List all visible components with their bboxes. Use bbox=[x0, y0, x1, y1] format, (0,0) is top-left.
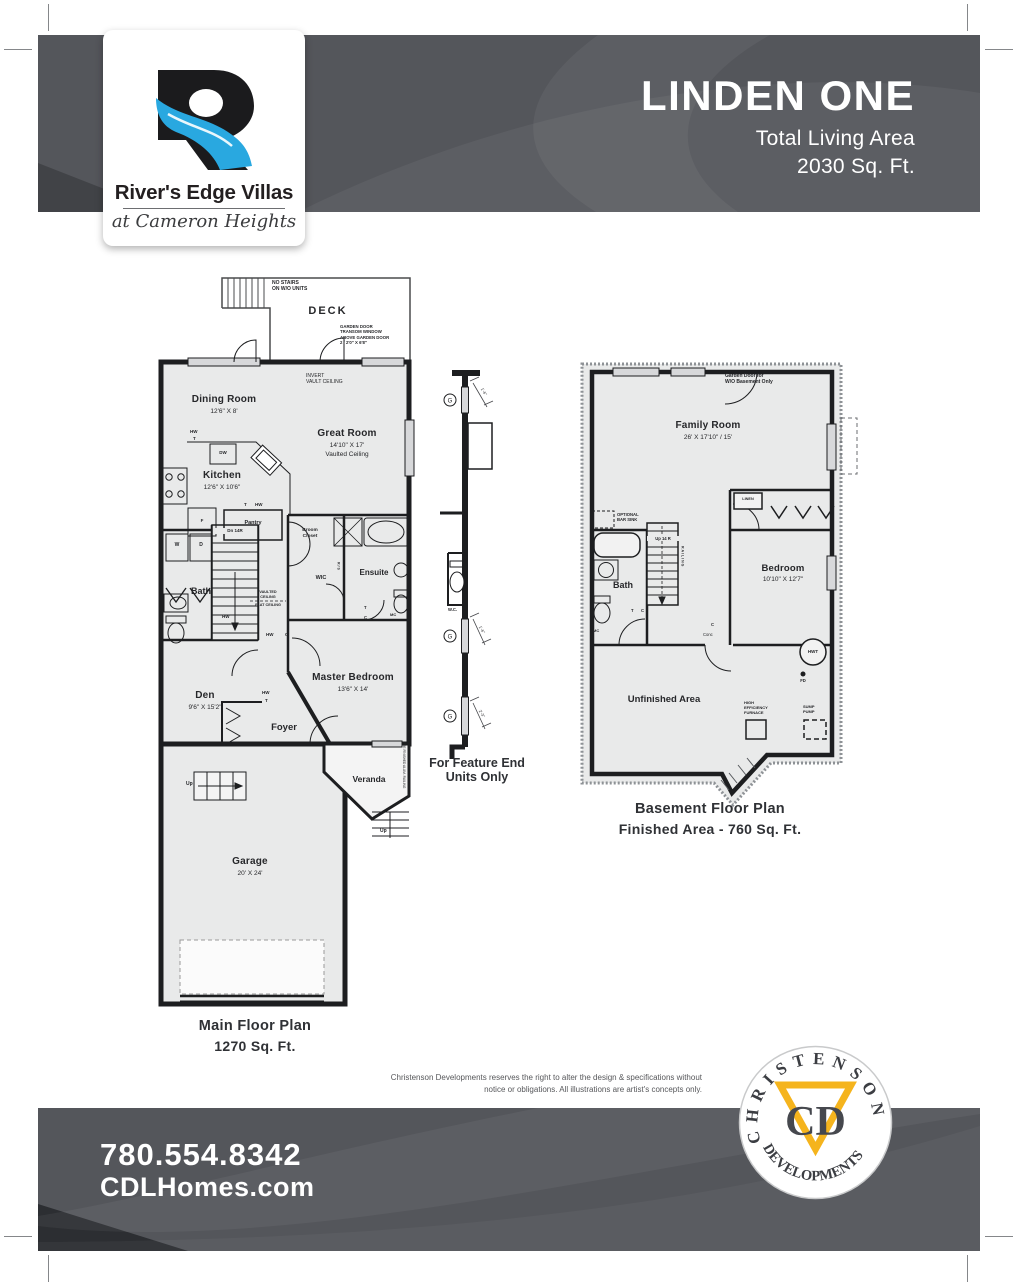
unfinished-label: Unfinished Area bbox=[605, 694, 723, 706]
crop-mark bbox=[985, 1236, 1013, 1237]
tag-washer: W bbox=[166, 542, 188, 548]
footer-phone: 780.554.8342 bbox=[100, 1138, 315, 1172]
room-name: Den bbox=[166, 690, 244, 703]
feature-bumpout bbox=[468, 423, 492, 469]
railing-label: RAILING bbox=[680, 546, 684, 567]
caption-area: Finished Area - 760 Sq. Ft. bbox=[604, 821, 816, 837]
tag-mc: MC bbox=[390, 612, 396, 617]
no-stairs-note: NO STAIRS ON W/O UNITS bbox=[272, 280, 307, 293]
room-name: Garage bbox=[190, 856, 310, 869]
caption-title: Basement Floor Plan bbox=[604, 801, 816, 817]
basement-bath-label: Bath bbox=[613, 580, 633, 591]
basement-floor-plan: Garden Door for W/O Basement Only Family… bbox=[575, 360, 865, 820]
footer-contact: 780.554.8342 CDLHomes.com bbox=[100, 1138, 315, 1203]
garden-door-note: GARDEN DOOR TRANSOM WINDOW ABOVE GARDEN … bbox=[340, 324, 389, 345]
closet-rod-note: R/S bbox=[336, 562, 340, 571]
room-dim: 10'10" X 12'7" bbox=[735, 576, 831, 584]
crop-mark bbox=[4, 49, 32, 50]
room-dim: 26' X 17'10" / 15' bbox=[647, 434, 769, 442]
feature-end-caption: For Feature End Units Only bbox=[408, 756, 546, 784]
tag-hw: HW bbox=[266, 632, 274, 638]
brand-tagline: at Cameron Heights bbox=[103, 211, 305, 232]
tag-t: T bbox=[193, 436, 196, 442]
tag-c: C bbox=[641, 608, 644, 613]
tag-t: T bbox=[265, 698, 268, 704]
crop-mark bbox=[967, 1255, 968, 1282]
footer-website: CDLHomes.com bbox=[100, 1172, 315, 1203]
cd-logo-drawing: CHRISTENSON DEVELOPMENTS CD bbox=[737, 1044, 894, 1201]
crop-mark bbox=[967, 4, 968, 31]
glass-tag: G bbox=[448, 635, 453, 641]
pantry-label: Pantry bbox=[224, 520, 282, 527]
vaulted-ceiling-note: VAULTED CEILING bbox=[252, 590, 284, 599]
brand-rule bbox=[123, 208, 285, 209]
invert-vault-note: INVERT VAULT CEILING bbox=[306, 373, 343, 386]
deck-label: DECK bbox=[298, 305, 358, 319]
tag-up: Up bbox=[186, 781, 193, 787]
sump-label: SUMP PUMP bbox=[803, 704, 815, 714]
tag-up: Up bbox=[380, 828, 387, 834]
tag-c: C bbox=[364, 615, 367, 620]
crop-mark bbox=[4, 1236, 32, 1237]
tag-c: C bbox=[711, 622, 714, 627]
floor-drain bbox=[801, 672, 806, 677]
plan-title: LINDEN ONE bbox=[520, 74, 915, 118]
room-note: Vaulted Ceiling bbox=[286, 451, 408, 459]
furnace-label: HIGH EFFICIENCY FURNACE bbox=[744, 700, 768, 716]
flat-ceiling-note: FLAT CEILING bbox=[250, 603, 286, 608]
caption-title: Main Floor Plan bbox=[160, 1018, 350, 1034]
optional-window-box bbox=[841, 418, 857, 474]
main-floor-caption: Main Floor Plan 1270 Sq. Ft. bbox=[160, 1018, 350, 1054]
room-bedroom: Bedroom 10'10" X 12'7" bbox=[735, 563, 831, 584]
rivers-edge-logo-icon bbox=[148, 66, 260, 170]
tag-fridge: F bbox=[194, 518, 210, 524]
room-dim: 9'6" X 15'2" bbox=[166, 704, 244, 712]
brand-logo-card: River's Edge Villas at Cameron Heights bbox=[103, 30, 305, 246]
tag-hw: HW bbox=[222, 614, 230, 620]
main-stairs-down bbox=[212, 525, 258, 640]
living-area-value: 2030 Sq. Ft. bbox=[520, 153, 915, 181]
veranda-label: Veranda bbox=[338, 774, 400, 785]
feature-end-wall: G G G 1'-6" 1'-6" 2'-3" W.C. bbox=[440, 365, 560, 795]
tag-t: T bbox=[364, 605, 367, 610]
room-master: Master Bedroom 13'6" X 14' bbox=[294, 672, 412, 694]
room-dining: Dining Room 12'6" X 8' bbox=[174, 394, 274, 416]
main-floor-drawing bbox=[158, 272, 418, 1017]
living-area-label: Total Living Area bbox=[520, 125, 915, 153]
room-name: Master Bedroom bbox=[294, 672, 412, 685]
crop-mark bbox=[48, 1255, 49, 1282]
stairs-up-label: Up 14 R bbox=[647, 536, 679, 541]
conc-label: Conc bbox=[703, 632, 713, 637]
linen-label: LINEN bbox=[734, 497, 762, 502]
room-great: Great Room 14'10" X 17' Vaulted Ceiling bbox=[286, 428, 408, 459]
brand-name: River's Edge Villas bbox=[103, 181, 305, 205]
basement-caption: Basement Floor Plan Finished Area - 760 … bbox=[604, 801, 816, 837]
room-kitchen: Kitchen 12'6" X 10'6" bbox=[176, 470, 268, 492]
glass-tag: G bbox=[448, 715, 453, 721]
railing-note: PRE FINISHED ALUM. RAILING bbox=[402, 742, 406, 806]
room-name: Family Room bbox=[647, 420, 769, 433]
plan-title-block: LINDEN ONE Total Living Area 2030 Sq. Ft… bbox=[520, 74, 915, 181]
tag-dishwasher: DW bbox=[210, 450, 236, 456]
room-dim: 20' X 24' bbox=[190, 870, 310, 878]
tag-hw: HW bbox=[262, 690, 270, 696]
wic-label: WIC bbox=[304, 575, 338, 582]
room-name: Kitchen bbox=[176, 470, 268, 483]
ensuite-label: Ensuite bbox=[346, 568, 402, 578]
room-name: Great Room bbox=[286, 428, 408, 441]
tag-t: T bbox=[244, 502, 247, 508]
tag-dryer: D bbox=[190, 542, 212, 548]
basement-garden-door-note: Garden Door for W/O Basement Only bbox=[725, 373, 773, 386]
caption-area: 1270 Sq. Ft. bbox=[160, 1038, 350, 1054]
crop-mark bbox=[985, 49, 1013, 50]
christenson-developments-logo: CHRISTENSON DEVELOPMENTS CD bbox=[737, 1044, 894, 1206]
tag-hw: HW bbox=[190, 429, 198, 435]
room-dim: 12'6" X 10'6" bbox=[176, 484, 268, 492]
broom-closet-label: Broom Closet bbox=[290, 528, 330, 540]
room-name: Dining Room bbox=[174, 394, 274, 407]
brochure-page: River's Edge Villas at Cameron Heights L… bbox=[0, 0, 1017, 1287]
main-floor-plan: NO STAIRS ON W/O UNITS DECK GARDEN DOOR … bbox=[158, 272, 418, 1017]
fd-label: FD bbox=[797, 678, 809, 683]
room-den: Den 9'6" X 15'2" bbox=[166, 690, 244, 712]
tag-hw: HW bbox=[255, 502, 263, 508]
feature-end-drawing: G G G bbox=[440, 365, 560, 795]
deck-outline bbox=[222, 278, 410, 360]
room-dim: 12'6" X 8' bbox=[174, 408, 274, 416]
garage-door bbox=[180, 940, 324, 1001]
room-family: Family Room 26' X 17'10" / 15' bbox=[647, 420, 769, 442]
room-dim: 14'10" X 17' bbox=[286, 442, 408, 450]
wc-label: W.C. bbox=[448, 607, 457, 612]
glass-tags: G G G bbox=[444, 394, 456, 722]
garage-entry-steps bbox=[194, 772, 246, 800]
cd-initials: CD bbox=[785, 1099, 846, 1145]
disclaimer-text: Christenson Developments reserves the ri… bbox=[368, 1072, 702, 1095]
room-dim: 13'6" X 14' bbox=[294, 686, 412, 694]
tag-t: T bbox=[631, 608, 634, 613]
tag-mc: MC bbox=[593, 628, 599, 633]
hwt-label: HWT bbox=[801, 649, 825, 655]
stairs-down-label: Dn 14R bbox=[214, 528, 256, 534]
crop-mark bbox=[48, 4, 49, 31]
foyer-label: Foyer bbox=[254, 722, 314, 734]
bath-label: Bath bbox=[176, 586, 226, 597]
bar-sink-label: OPTIONAL BAR SINK bbox=[617, 512, 639, 523]
room-garage: Garage 20' X 24' bbox=[190, 856, 310, 878]
room-name: Bedroom bbox=[735, 563, 831, 575]
tag-c: C bbox=[285, 632, 288, 638]
glass-tag: G bbox=[448, 399, 453, 405]
